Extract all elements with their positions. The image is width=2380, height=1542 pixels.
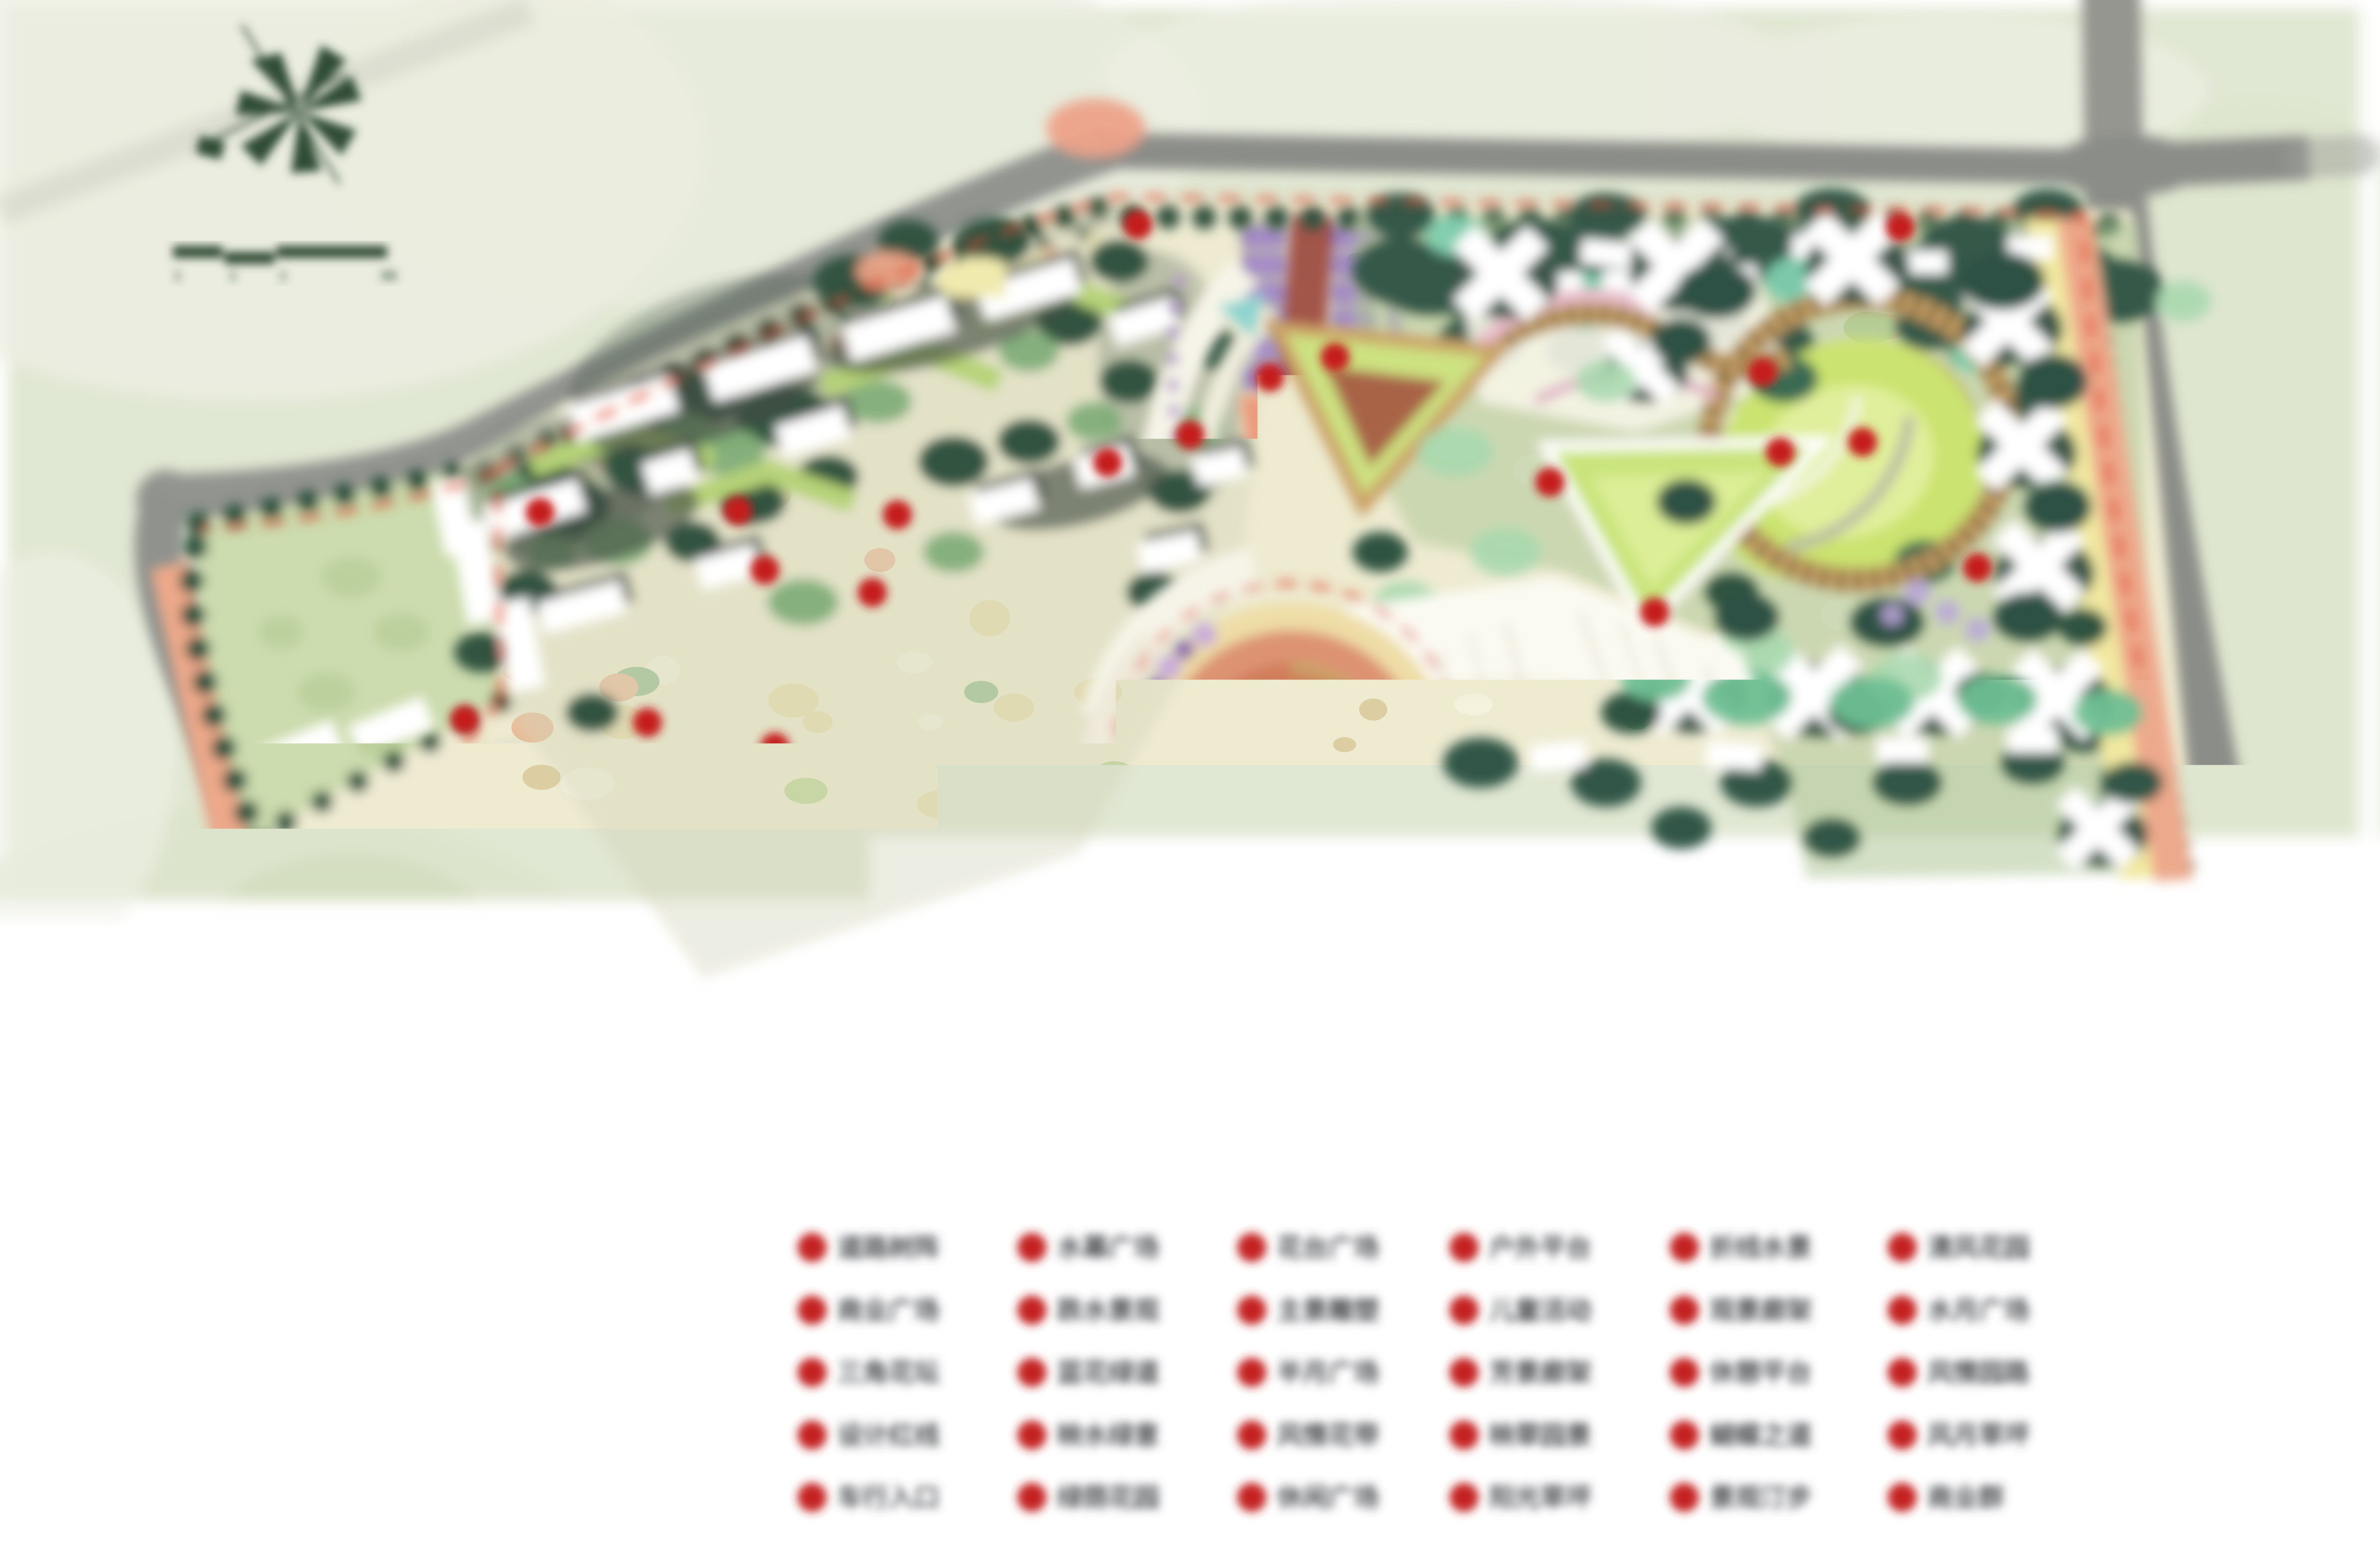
svg-text:阳光草坪: 阳光草坪 [1489,1483,1592,1512]
svg-text:商业广场: 商业广场 [837,1296,940,1325]
svg-text:花台广场: 花台广场 [1277,1233,1379,1262]
svg-text:主景雕塑: 主景雕塑 [1277,1296,1379,1325]
svg-text:清风花园: 清风花园 [1927,1233,2030,1262]
svg-text:设计红线: 设计红线 [837,1421,940,1450]
svg-text:芳景廊架: 芳景廊架 [1489,1358,1592,1387]
svg-text:休闲广场: 休闲广场 [1276,1483,1379,1512]
svg-text:风情花带: 风情花带 [1277,1421,1379,1450]
svg-text:半月广场: 半月广场 [1277,1358,1379,1387]
svg-text:休憩平台: 休憩平台 [1709,1358,1812,1387]
svg-text:水月广场: 水月广场 [1927,1296,2030,1325]
svg-text:跌水景观: 跌水景观 [1057,1296,1159,1325]
svg-text:观景廊架: 观景廊架 [1709,1296,1812,1325]
svg-text:车行入口: 车行入口 [837,1483,940,1512]
svg-text:儿童活动: 儿童活动 [1489,1296,1592,1325]
svg-text:商业群: 商业群 [1927,1483,2004,1512]
svg-text:映水绿意: 映水绿意 [1057,1421,1159,1450]
svg-text:道路树阵: 道路树阵 [837,1233,940,1262]
svg-text:折线水景: 折线水景 [1709,1233,1812,1262]
svg-text:绿荫花园: 绿荫花园 [1057,1483,1159,1512]
svg-text:风情园路: 风情园路 [1927,1358,2030,1387]
svg-text:三角花坛: 三角花坛 [837,1358,940,1387]
svg-text:景观汀步: 景观汀步 [1709,1483,1812,1512]
svg-text:蝴蝶之道: 蝴蝶之道 [1709,1421,1812,1450]
svg-text:映翠园景: 映翠园景 [1489,1421,1592,1450]
svg-text:水幕广场: 水幕广场 [1057,1233,1159,1262]
svg-text:风月草坪: 风月草坪 [1927,1421,2030,1450]
svg-text:蓝花绿道: 蓝花绿道 [1057,1358,1159,1387]
svg-text:户外平台: 户外平台 [1489,1233,1592,1262]
